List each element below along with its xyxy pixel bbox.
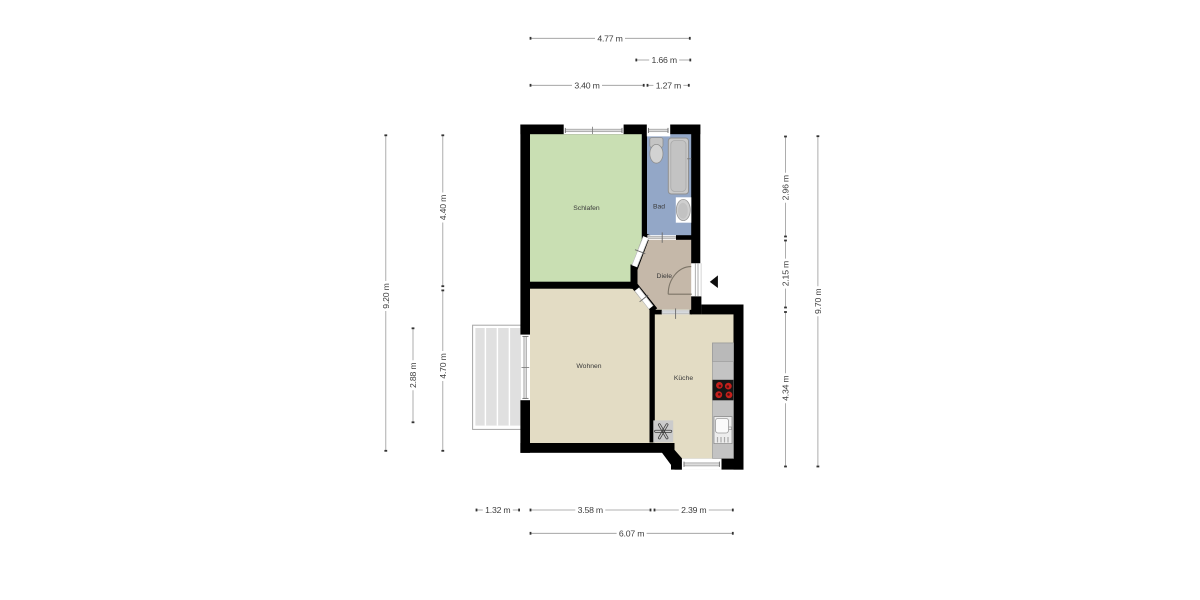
svg-text:2.96 m: 2.96 m: [781, 175, 791, 200]
svg-text:2.15 m: 2.15 m: [781, 261, 791, 286]
svg-text:Diele: Diele: [657, 273, 673, 280]
svg-text:3.40 m: 3.40 m: [574, 80, 599, 90]
svg-text:Schlafen: Schlafen: [573, 205, 600, 212]
svg-text:1.66 m: 1.66 m: [652, 55, 677, 65]
svg-text:3.58 m: 3.58 m: [578, 505, 603, 515]
svg-text:6.07 m: 6.07 m: [619, 528, 644, 538]
svg-text:4.77 m: 4.77 m: [597, 33, 622, 43]
svg-text:1.27 m: 1.27 m: [656, 80, 681, 90]
svg-text:2.88 m: 2.88 m: [408, 363, 418, 388]
svg-text:4.40 m: 4.40 m: [438, 195, 448, 220]
svg-text:4.70 m: 4.70 m: [438, 353, 448, 378]
svg-text:Wohnen: Wohnen: [576, 363, 601, 370]
svg-text:9.20 m: 9.20 m: [381, 283, 391, 308]
svg-text:2.39 m: 2.39 m: [681, 505, 706, 515]
svg-text:1.32 m: 1.32 m: [485, 505, 510, 515]
svg-text:Bad: Bad: [653, 204, 665, 211]
svg-text:9.70 m: 9.70 m: [813, 289, 823, 314]
svg-text:4.34 m: 4.34 m: [781, 376, 791, 401]
svg-text:Küche: Küche: [674, 375, 693, 382]
